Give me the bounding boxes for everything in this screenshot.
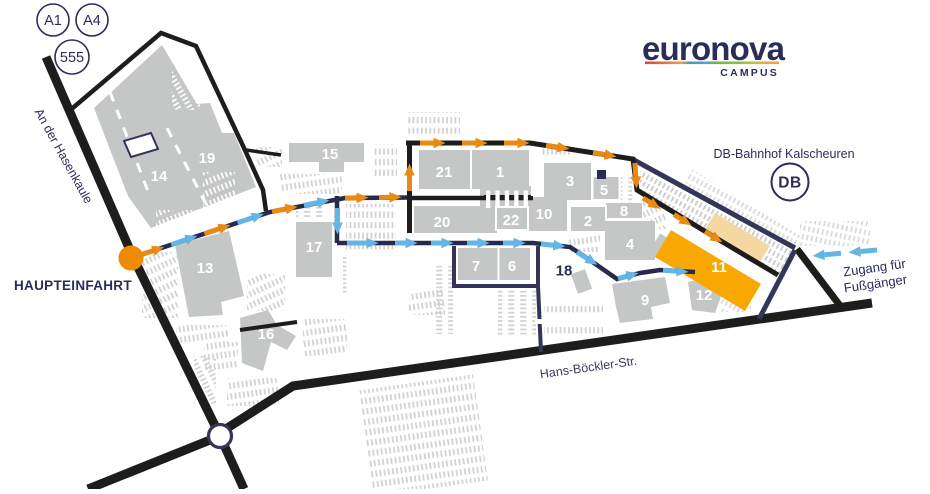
svg-text:euronova: euronova: [642, 30, 786, 67]
svg-text:7: 7: [472, 258, 480, 275]
svg-text:HAUPTEINFAHRT: HAUPTEINFAHRT: [14, 278, 132, 293]
svg-text:5: 5: [600, 182, 608, 199]
svg-text:17: 17: [306, 239, 323, 256]
svg-text:555: 555: [60, 50, 84, 66]
svg-text:DB-Bahnhof Kalscheuren: DB-Bahnhof Kalscheuren: [713, 147, 854, 161]
svg-text:1: 1: [496, 164, 504, 181]
svg-text:18: 18: [556, 263, 573, 280]
svg-text:8: 8: [620, 203, 628, 220]
svg-text:4: 4: [626, 236, 635, 253]
svg-text:9: 9: [641, 292, 649, 309]
svg-text:16: 16: [258, 326, 275, 343]
svg-text:Hans-Böckler-Str.: Hans-Böckler-Str.: [539, 354, 638, 381]
svg-text:21: 21: [436, 164, 453, 181]
svg-text:13: 13: [197, 260, 214, 277]
svg-text:2: 2: [584, 213, 592, 230]
svg-text:3: 3: [566, 173, 574, 190]
svg-text:11: 11: [711, 259, 727, 276]
svg-text:A4: A4: [83, 13, 101, 29]
svg-text:22: 22: [503, 212, 520, 229]
svg-text:20: 20: [434, 214, 451, 231]
svg-text:10: 10: [536, 206, 553, 223]
svg-text:6: 6: [508, 258, 516, 275]
svg-text:DB: DB: [778, 175, 801, 192]
svg-text:A1: A1: [44, 13, 62, 29]
svg-text:12: 12: [696, 287, 713, 304]
svg-text:19: 19: [199, 150, 216, 167]
svg-text:15: 15: [322, 146, 339, 163]
svg-text:14: 14: [151, 168, 168, 185]
svg-text:CAMPUS: CAMPUS: [720, 67, 779, 79]
